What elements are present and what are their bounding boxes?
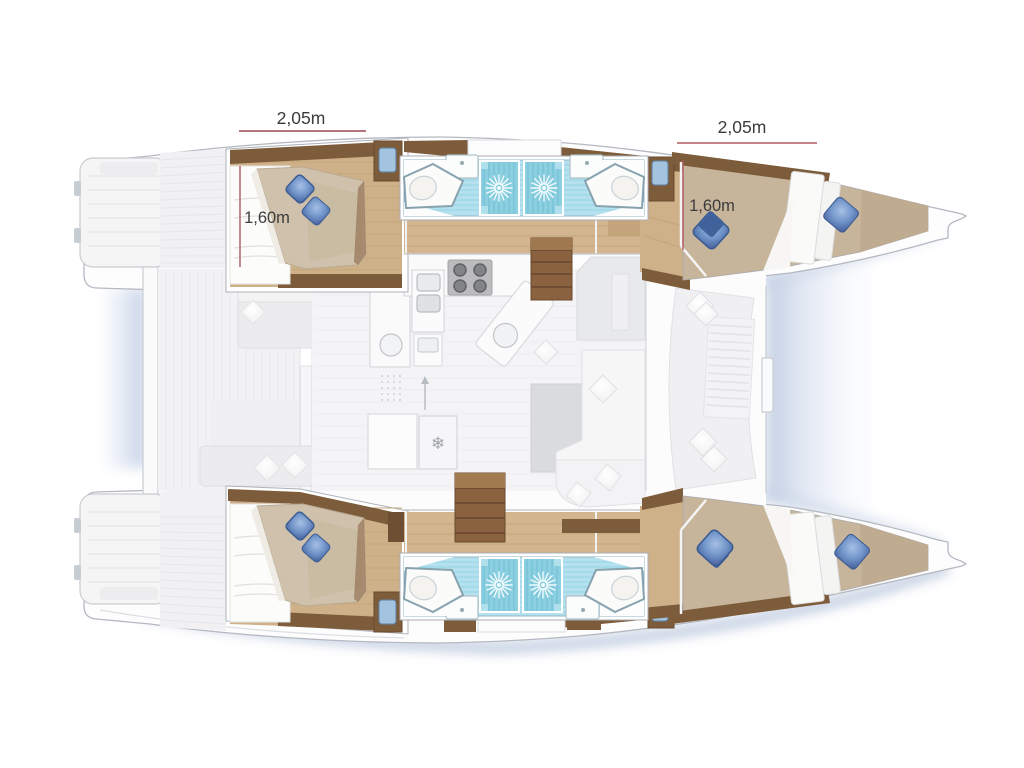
svg-text:❄: ❄ <box>431 434 445 453</box>
svg-text:2,05m: 2,05m <box>718 117 767 137</box>
svg-text:2,05m: 2,05m <box>277 108 326 128</box>
svg-text:1,60m: 1,60m <box>689 197 735 215</box>
svg-text:1,60m: 1,60m <box>244 209 290 227</box>
